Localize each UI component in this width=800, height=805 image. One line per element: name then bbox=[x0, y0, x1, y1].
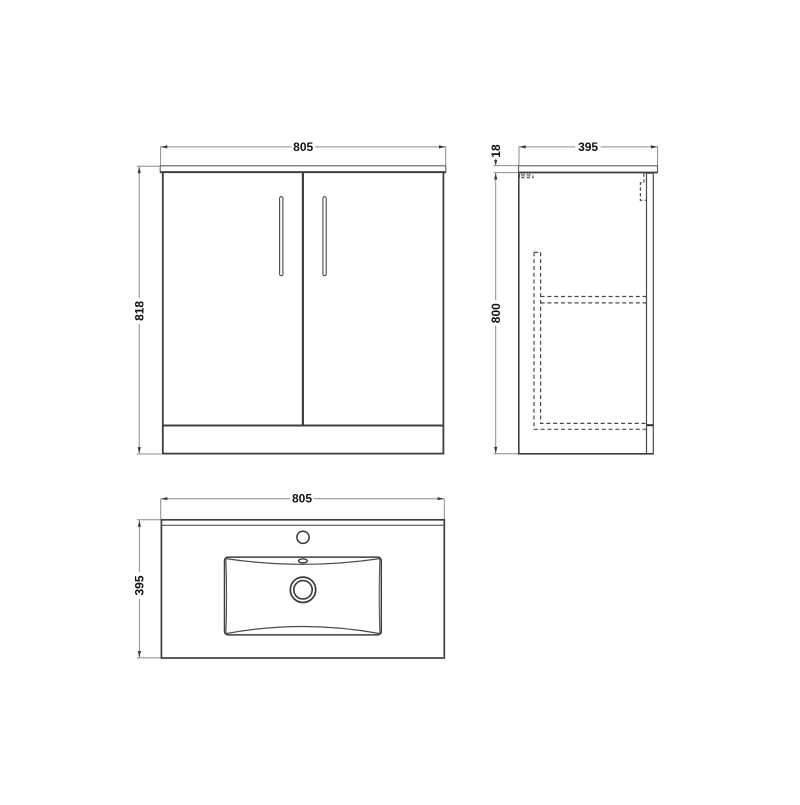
svg-text:395: 395 bbox=[578, 140, 598, 154]
svg-text:805: 805 bbox=[293, 140, 313, 154]
svg-text:805: 805 bbox=[292, 492, 312, 506]
svg-text:18: 18 bbox=[489, 144, 503, 158]
svg-text:818: 818 bbox=[132, 301, 146, 321]
svg-text:395: 395 bbox=[133, 575, 147, 595]
svg-text:800: 800 bbox=[489, 303, 503, 323]
